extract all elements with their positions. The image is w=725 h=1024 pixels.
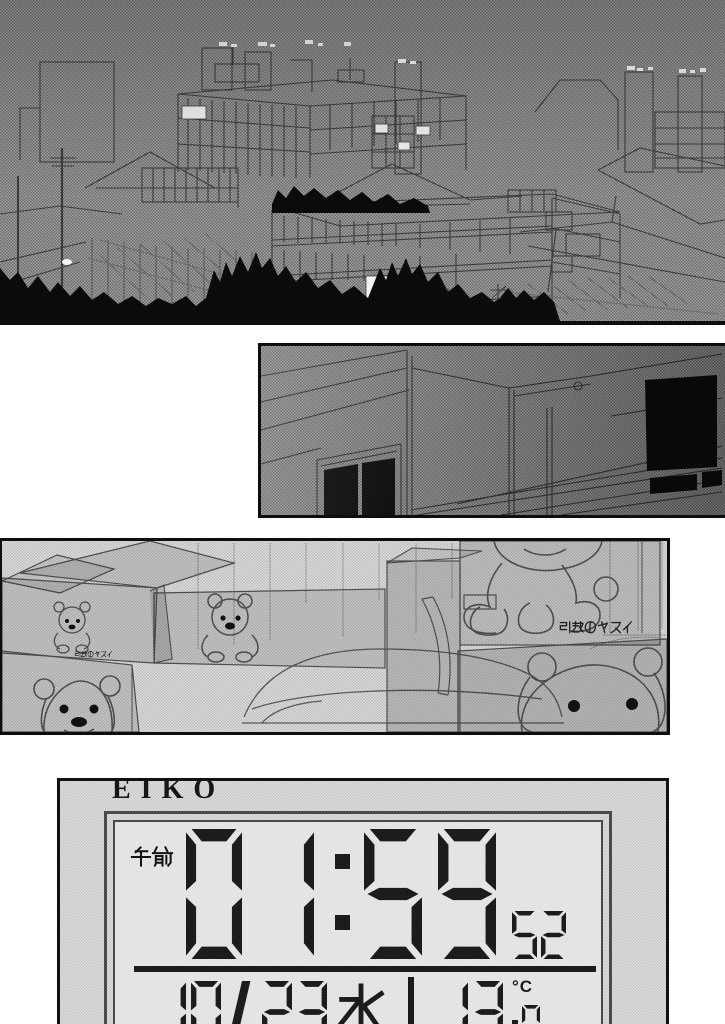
time-colon [333,829,351,959]
temperature-value [438,981,508,1024]
time-hours [186,829,330,959]
box-bear-face-left [2,651,139,732]
dark-openings [324,375,722,515]
tree-silhouettes [0,186,560,321]
clock-brand: EIKO [112,778,225,806]
manga-page: { "clock": { "brand": "EIKO", "am_label"… [0,0,725,1024]
room-art [261,346,722,515]
date-slash [224,981,254,1024]
box-sitting-bear [154,589,385,668]
tower [245,52,271,90]
box-bear-mascot [460,541,660,645]
lcd-vertical-divider [408,977,414,1024]
cityscape-art [0,0,725,321]
panel-moving-boxes [0,538,670,735]
tower [625,72,653,172]
temperature-decimal [522,1005,540,1024]
lcd-separator-line [134,966,596,972]
date-month [156,981,226,1024]
panel-room-interior [258,343,725,518]
panel-digital-clock: EIKO °C [57,778,669,1024]
temperature-unit: °C [512,977,533,997]
tower [202,48,232,90]
time-minutes [364,829,512,959]
weekday-kanji [332,983,390,1024]
am-label [130,845,174,867]
moving-boxes-art [2,541,667,732]
dark-window [645,375,717,471]
panel-cityscape [0,0,725,325]
tower [395,62,421,174]
tower [40,62,114,162]
date-day [262,981,332,1024]
temperature-decimal-dot [512,1020,518,1024]
time-seconds [512,911,570,959]
box-bear-face-right [458,639,667,732]
